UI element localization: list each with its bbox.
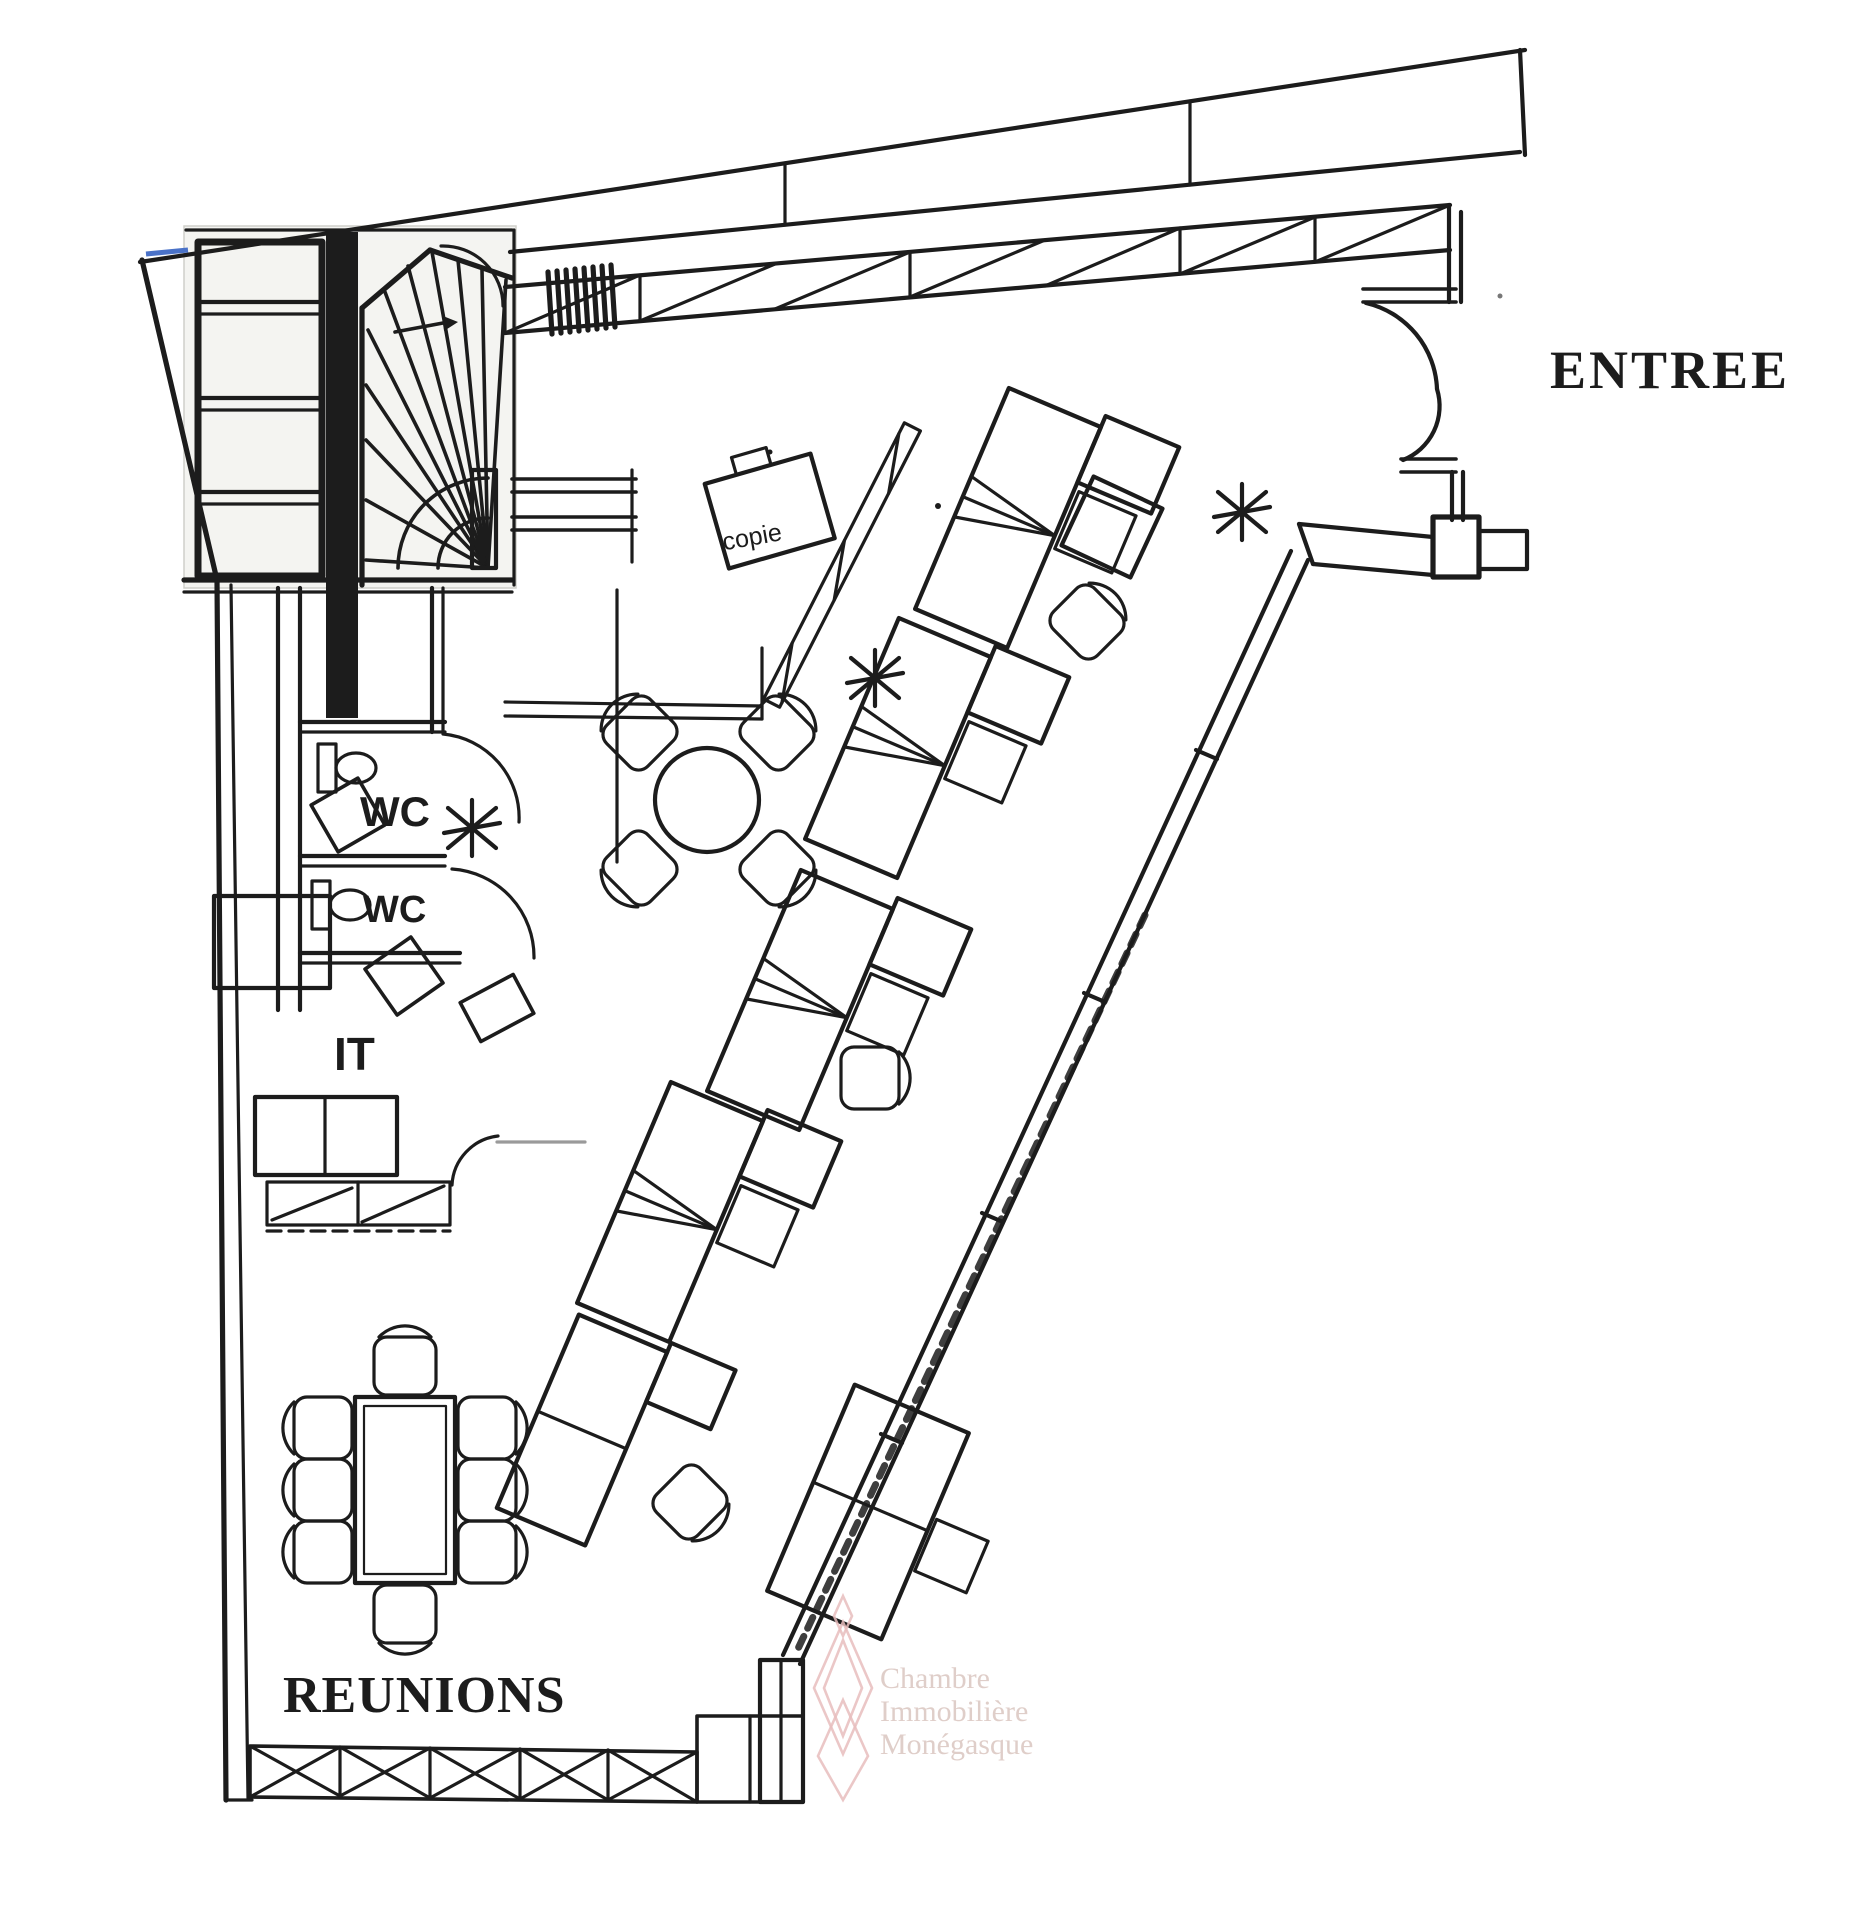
wc1-label: WC	[360, 788, 430, 835]
speck	[1498, 294, 1503, 299]
copier-label: copie	[720, 518, 784, 556]
entrance-label: ENTREE	[1550, 340, 1790, 400]
conference-table	[283, 1326, 527, 1654]
workstation-desk-icon	[915, 377, 1179, 679]
workstation-desk-icon	[767, 1385, 1024, 1663]
it-room-furniture	[214, 778, 534, 1231]
floor-plan-canvas: copie	[0, 0, 1853, 1920]
watermark-line1: Chambre	[880, 1662, 990, 1695]
floor-plan-page: copie	[0, 0, 1853, 1920]
meeting-room-label: REUNIONS	[283, 1667, 566, 1724]
toilet-icon	[312, 881, 370, 929]
plant-icon	[1214, 484, 1270, 540]
workstation-desk-icon	[805, 607, 1069, 909]
window-truss-band	[505, 205, 1450, 333]
watermark-logo-icon	[814, 1596, 872, 1800]
office-chair-icon	[841, 1047, 910, 1109]
blue-corner-mark	[146, 250, 188, 254]
pedestal	[1062, 477, 1163, 578]
door-swing-icon	[443, 734, 519, 822]
plant-icon	[847, 650, 903, 706]
bottom-window-band	[250, 1716, 803, 1802]
it-room-label: IT	[334, 1028, 375, 1080]
door-swing-icon	[452, 1136, 498, 1185]
watermark: Chambre Immobilière Monégasque	[814, 1596, 1033, 1800]
watermark-line2: Immobilière	[880, 1695, 1028, 1728]
privacy-screen	[764, 423, 921, 707]
watermark-line3: Monégasque	[880, 1728, 1033, 1761]
door-swing-icon	[452, 869, 534, 958]
workstation-desk-icon	[577, 1071, 841, 1373]
plant-icon	[444, 800, 500, 856]
speck	[768, 450, 773, 455]
entrance-pier-wall	[1299, 517, 1527, 577]
speck	[935, 503, 941, 509]
wc2-label: WC	[363, 889, 426, 931]
office-chair-icon	[1045, 572, 1138, 665]
office-chair-icon	[648, 1460, 741, 1553]
